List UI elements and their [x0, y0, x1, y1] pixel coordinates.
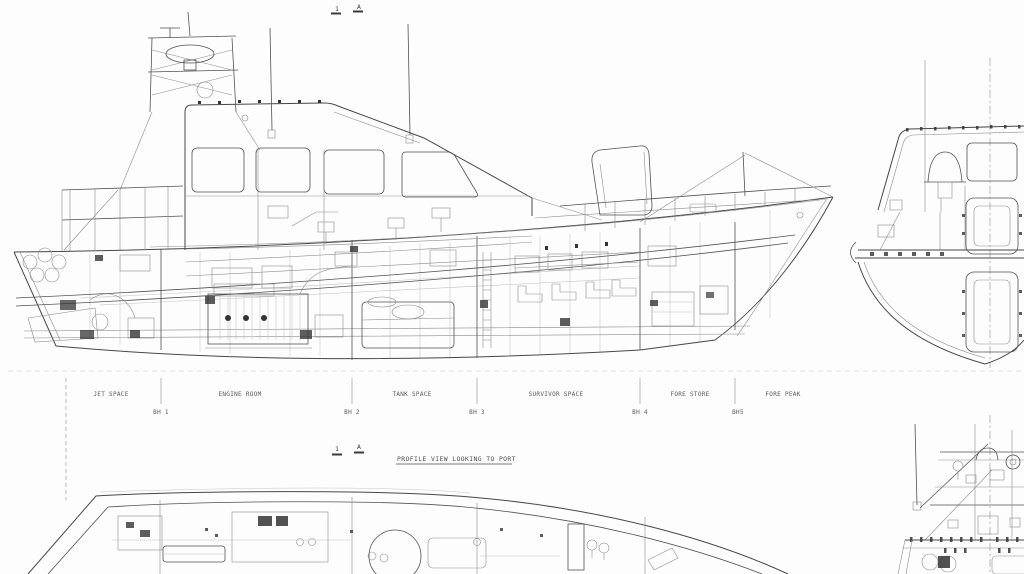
mast-antenna	[160, 12, 190, 38]
bulkhead-label: BH 3	[469, 409, 485, 416]
fuel-tank	[362, 252, 491, 348]
crew-seat	[592, 146, 652, 215]
section-marker-letter: A	[357, 443, 361, 451]
equipment-marks	[95, 246, 658, 339]
aft-section-view	[898, 415, 1024, 574]
mast-light	[197, 82, 213, 98]
section-marker-mid: 1 A	[332, 443, 364, 455]
engine-room-machinery	[205, 266, 352, 348]
bulkhead-label: BH 2	[344, 409, 360, 416]
nav-light	[242, 115, 248, 121]
compartment-label: JET SPACE	[93, 391, 128, 398]
bow-railings	[560, 153, 833, 231]
section-window	[967, 143, 1017, 181]
whip-antennas	[268, 24, 745, 196]
bulkhead-lines	[161, 222, 735, 360]
wheelhouse-window	[324, 150, 384, 194]
plan-winch-drum	[369, 530, 421, 574]
plan-view	[28, 488, 788, 574]
section-marker-top: 1 A	[331, 3, 363, 14]
lifeboat-general-arrangement-drawing: 1 A	[0, 0, 1024, 574]
wheelhouse-window	[192, 148, 244, 192]
section-marker-number: 1	[335, 5, 339, 13]
section-marker-letter: A	[357, 3, 361, 11]
compartment-label: FORE PEAK	[765, 391, 800, 398]
blueprint-canvas: 1 A	[0, 0, 1024, 574]
bow-section-view	[851, 58, 1024, 368]
fore-store-fittings	[652, 204, 803, 326]
section-marker-number: 1	[335, 445, 339, 453]
drawing-title: PROFILE VIEW LOOKING TO PORT	[397, 455, 516, 463]
compartment-label: SURVIVOR SPACE	[529, 391, 584, 398]
bulkhead-label: BH5	[732, 409, 744, 416]
compartment-label: ENGINE ROOM	[218, 391, 261, 398]
compartment-labels: JET SPACE ENGINE ROOM TANK SPACE SURVIVO…	[66, 378, 801, 500]
compartment-label: TANK SPACE	[392, 391, 431, 398]
bulkhead-label: BH 4	[632, 409, 648, 416]
aft-railings	[62, 186, 183, 251]
waterjet-machinery	[23, 248, 154, 342]
compartment-label: FORE STORE	[670, 391, 709, 398]
profile-view	[14, 12, 833, 360]
windscreen-window	[402, 152, 478, 197]
profile-title: PROFILE VIEW LOOKING TO PORT	[396, 455, 516, 464]
wheelhouse-window	[256, 148, 310, 192]
section-dome	[924, 152, 966, 182]
deckhouse	[185, 100, 602, 250]
bulkhead-label: BH 1	[153, 409, 169, 416]
